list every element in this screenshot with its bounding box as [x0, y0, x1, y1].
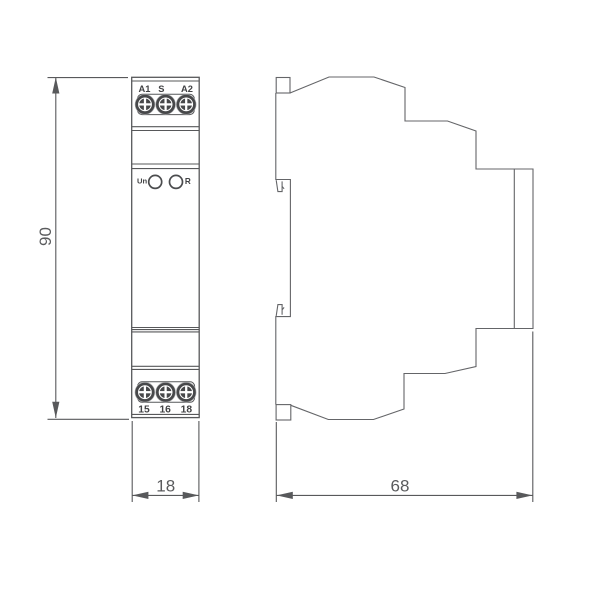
svg-text:18: 18	[156, 476, 175, 495]
svg-text:68: 68	[391, 477, 410, 496]
svg-text:90: 90	[36, 227, 55, 246]
svg-text:A2: A2	[181, 84, 193, 94]
svg-text:S: S	[158, 84, 164, 94]
svg-text:16: 16	[159, 404, 171, 415]
svg-text:Un: Un	[137, 177, 147, 186]
svg-text:15: 15	[138, 404, 150, 415]
svg-text:R: R	[185, 177, 191, 186]
svg-text:A1: A1	[139, 84, 151, 94]
svg-text:18: 18	[181, 404, 193, 415]
